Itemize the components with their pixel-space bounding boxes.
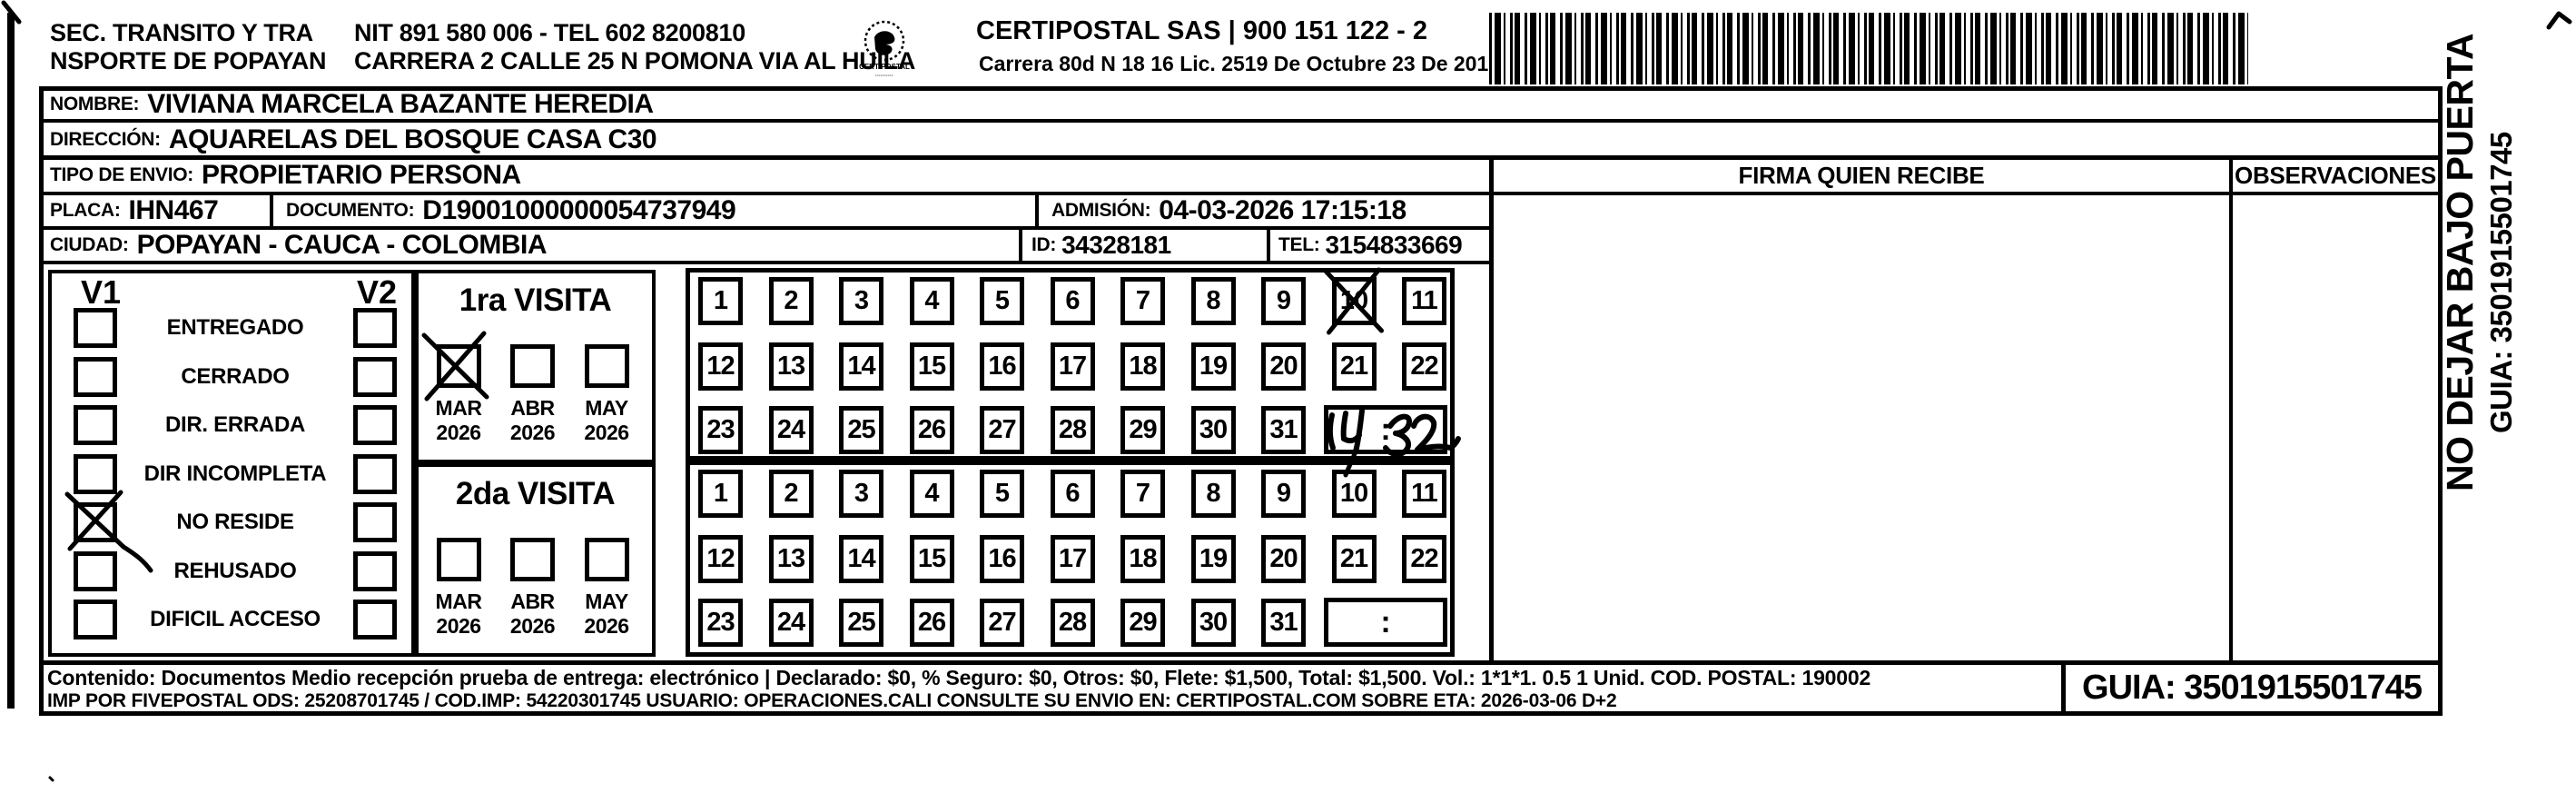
v1-checkbox-dir-errada[interactable] xyxy=(74,405,117,445)
admision-cell: ADMISIÓN: 04-03-2026 17:15:18 xyxy=(1051,196,1406,225)
v1-checkbox-rehusado[interactable] xyxy=(74,551,117,591)
first-visit-day-14[interactable]: 14 xyxy=(839,342,883,391)
second-visit-day-18[interactable]: 18 xyxy=(1120,535,1165,583)
status-row-dificil-acceso: DIFICIL ACCESO xyxy=(74,598,397,641)
firma-header: FIRMA QUIEN RECIBE xyxy=(1494,160,2229,192)
month-label: MAY xyxy=(578,396,635,421)
first-visit-day-21[interactable]: 21 xyxy=(1332,342,1377,391)
first-visit-day-1[interactable]: 1 xyxy=(698,277,743,325)
v2-checkbox-dir-incompleta[interactable] xyxy=(353,454,397,494)
month-label: MAY xyxy=(578,590,635,614)
second-visit-day-11[interactable]: 11 xyxy=(1402,470,1446,518)
second-visit-day-29[interactable]: 29 xyxy=(1120,599,1165,647)
direccion-label: DIRECCIÓN: xyxy=(50,129,161,151)
status-row-rehusado: REHUSADO xyxy=(74,550,397,593)
divider xyxy=(1267,226,1270,264)
first-visit-day-10[interactable]: 10 xyxy=(1332,277,1377,325)
documento-cell: DOCUMENTO: D19001000000054737949 xyxy=(286,196,735,225)
first-visit-day-17[interactable]: 17 xyxy=(1051,342,1095,391)
status-option-label: DIR. ERRADA xyxy=(117,412,353,438)
second-visit-day-23[interactable]: 23 xyxy=(698,599,743,647)
second-visit-title: 2da VISITA xyxy=(419,476,652,512)
placa-label: PLACA: xyxy=(50,200,121,222)
first-visit-day-7[interactable]: 7 xyxy=(1120,277,1165,325)
second-visit-month-col: MAR2026 xyxy=(430,538,487,639)
first-visit-day-5[interactable]: 5 xyxy=(980,277,1024,325)
first-visit-day-24[interactable]: 24 xyxy=(769,406,814,454)
second-visit-day-13[interactable]: 13 xyxy=(769,535,814,583)
first-visit-panel: 1ra VISITA MAR2026ABR2026MAY2026 xyxy=(415,270,656,463)
nombre-label: NOMBRE: xyxy=(50,94,139,115)
second-visit-day-28[interactable]: 28 xyxy=(1051,599,1095,647)
guia-vertical: GUIA: 3501915501745 xyxy=(2484,132,2519,433)
second-visit-month-checkbox-abr[interactable] xyxy=(510,538,555,581)
first-visit-month-col: MAR2026 xyxy=(430,344,487,445)
svg-text:··········: ·········· xyxy=(875,74,893,79)
second-visit-day-19[interactable]: 19 xyxy=(1191,535,1236,583)
v1-checkbox-dificil-acceso[interactable] xyxy=(74,600,117,639)
first-visit-day-20[interactable]: 20 xyxy=(1261,342,1306,391)
second-visit-day-4[interactable]: 4 xyxy=(910,470,954,518)
tracking-barcode xyxy=(1489,13,2248,84)
status-row-entregado: ENTREGADO xyxy=(74,306,397,350)
footer-line2: IMP POR FIVEPOSTAL ODS: 25208701745 / CO… xyxy=(47,690,1616,712)
second-visit-day-10[interactable]: 10 xyxy=(1332,470,1377,518)
svg-text:CERTIPOSTAL: CERTIPOSTAL xyxy=(859,63,910,71)
delivery-status-panel: V1 V2 ENTREGADOCERRADODIR. ERRADADIR INC… xyxy=(48,270,415,657)
month-label: MAR xyxy=(430,396,487,421)
second-visit-day-2[interactable]: 2 xyxy=(769,470,814,518)
status-option-label: DIFICIL ACCESO xyxy=(117,607,353,632)
first-visit-time-box[interactable]: : xyxy=(1324,405,1447,454)
second-visit-month-checkbox-mar[interactable] xyxy=(437,538,481,581)
status-option-label: DIR INCOMPLETA xyxy=(117,461,353,487)
tipo-envio-value: PROPIETARIO PERSONA xyxy=(202,160,521,191)
firma-area[interactable] xyxy=(1494,195,2229,660)
v2-checkbox-rehusado[interactable] xyxy=(353,551,397,591)
company-name: CERTIPOSTAL SAS | 900 151 122 - 2 xyxy=(976,16,1427,46)
first-visit-month-checkbox-mar[interactable] xyxy=(437,344,481,388)
year-label: 2026 xyxy=(578,421,635,445)
guia-number: GUIA: 3501915501745 xyxy=(2066,665,2438,711)
status-row-cerrado: CERRADO xyxy=(74,355,397,399)
documento-value: D19001000000054737949 xyxy=(422,195,735,226)
first-visit-title: 1ra VISITA xyxy=(419,283,652,319)
second-visit-day-21[interactable]: 21 xyxy=(1332,535,1377,583)
placa-value: IHN467 xyxy=(129,195,219,226)
id-value: 34328181 xyxy=(1061,231,1171,260)
second-visit-day-30[interactable]: 30 xyxy=(1191,599,1236,647)
v1-checkbox-cerrado[interactable] xyxy=(74,357,117,397)
first-visit-day-9[interactable]: 9 xyxy=(1261,277,1306,325)
first-visit-day-26[interactable]: 26 xyxy=(910,406,954,454)
direccion-value: AQUARELAS DEL BOSQUE CASA C30 xyxy=(169,124,656,155)
v2-checkbox-no-reside[interactable] xyxy=(353,502,397,542)
status-option-label: CERRADO xyxy=(117,364,353,390)
tel-cell: TEL: 3154833669 xyxy=(1278,231,1462,260)
year-label: 2026 xyxy=(505,421,561,445)
first-visit-day-3[interactable]: 3 xyxy=(839,277,883,325)
status-option-label: NO RESIDE xyxy=(117,510,353,535)
documento-label: DOCUMENTO: xyxy=(286,200,414,222)
v1-checkbox-no-reside[interactable] xyxy=(74,502,117,542)
status-row-dir-incompleta: DIR INCOMPLETA xyxy=(74,452,397,496)
first-visit-day-23[interactable]: 23 xyxy=(698,406,743,454)
direccion-row: DIRECCIÓN: AQUARELAS DEL BOSQUE CASA C30 xyxy=(50,125,656,154)
tipo-envio-row: TIPO DE ENVIO: PROPIETARIO PERSONA xyxy=(50,161,521,190)
second-visit-day-6[interactable]: 6 xyxy=(1051,470,1095,518)
second-visit-month-checkbox-may[interactable] xyxy=(585,538,629,581)
company-address: Carrera 80d N 18 16 Lic. 2519 De Octubre… xyxy=(979,52,1500,76)
first-visit-day-25[interactable]: 25 xyxy=(839,406,883,454)
second-visit-day-8[interactable]: 8 xyxy=(1191,470,1236,518)
second-visit-day-24[interactable]: 24 xyxy=(769,599,814,647)
admision-label: ADMISIÓN: xyxy=(1051,200,1150,222)
first-visit-day-grid: 1234567891011121314151617181920212223242… xyxy=(686,268,1455,461)
placa-cell: PLACA: IHN467 xyxy=(50,196,218,225)
status-option-label: ENTREGADO xyxy=(117,315,353,341)
nombre-row: NOMBRE: VIVIANA MARCELA BAZANTE HEREDIA xyxy=(50,90,654,119)
month-label: ABR xyxy=(505,590,561,614)
divider xyxy=(39,261,1493,264)
second-visit-month-col: ABR2026 xyxy=(505,538,561,639)
second-visit-day-3[interactable]: 3 xyxy=(839,470,883,518)
first-visit-day-16[interactable]: 16 xyxy=(980,342,1024,391)
divider xyxy=(1035,192,1039,230)
first-visit-day-30[interactable]: 30 xyxy=(1191,406,1236,454)
first-visit-day-29[interactable]: 29 xyxy=(1120,406,1165,454)
v1-checkbox-dir-incompleta[interactable] xyxy=(74,454,117,494)
second-visit-day-7[interactable]: 7 xyxy=(1120,470,1165,518)
tel-value: 3154833669 xyxy=(1325,231,1462,260)
month-label: MAR xyxy=(430,590,487,614)
second-visit-day-25[interactable]: 25 xyxy=(839,599,883,647)
v2-checkbox-dir-errada[interactable] xyxy=(353,405,397,445)
v1-checkbox-entregado[interactable] xyxy=(74,308,117,348)
status-row-no-reside: NO RESIDE xyxy=(74,501,397,544)
v2-checkbox-cerrado[interactable] xyxy=(353,357,397,397)
first-visit-day-15[interactable]: 15 xyxy=(910,342,954,391)
second-visit-day-14[interactable]: 14 xyxy=(839,535,883,583)
first-visit-day-27[interactable]: 27 xyxy=(980,406,1024,454)
second-visit-panel: 2da VISITA MAR2026ABR2026MAY2026 xyxy=(415,463,656,657)
second-visit-day-1[interactable]: 1 xyxy=(698,470,743,518)
first-visit-day-11[interactable]: 11 xyxy=(1402,277,1446,325)
tel-label: TEL: xyxy=(1278,234,1319,256)
second-visit-time-box[interactable]: : xyxy=(1324,598,1447,647)
first-visit-day-12[interactable]: 12 xyxy=(698,342,743,391)
second-visit-day-5[interactable]: 5 xyxy=(980,470,1024,518)
second-visit-day-12[interactable]: 12 xyxy=(698,535,743,583)
first-visit-day-13[interactable]: 13 xyxy=(769,342,814,391)
observaciones-header: OBSERVACIONES xyxy=(2233,160,2438,192)
first-visit-month-col: MAY2026 xyxy=(578,344,635,445)
year-label: 2026 xyxy=(430,614,487,639)
shipping-label-scan: SEC. TRANSITO Y TRA NSPORTE DE POPAYAN N… xyxy=(0,0,2576,803)
ciudad-value: POPAYAN - CAUCA - COLOMBIA xyxy=(137,230,547,261)
ciudad-label: CIUDAD: xyxy=(50,234,129,256)
footer-line1: Contenido: Documentos Medio recepción pr… xyxy=(47,666,1870,690)
v2-checkbox-entregado[interactable] xyxy=(353,308,397,348)
year-label: 2026 xyxy=(578,614,635,639)
border-left xyxy=(39,86,44,716)
ciudad-cell: CIUDAD: POPAYAN - CAUCA - COLOMBIA xyxy=(50,231,547,260)
id-cell: ID: 34328181 xyxy=(1031,231,1171,260)
year-label: 2026 xyxy=(430,421,487,445)
id-label: ID: xyxy=(1031,234,1056,256)
first-visit-day-4[interactable]: 4 xyxy=(910,277,954,325)
status-row-dir-errada: DIR. ERRADA xyxy=(74,403,397,447)
admision-value: 04-03-2026 17:15:18 xyxy=(1159,195,1406,226)
second-visit-day-20[interactable]: 20 xyxy=(1261,535,1306,583)
second-visit-month-col: MAY2026 xyxy=(578,538,635,639)
second-visit-day-22[interactable]: 22 xyxy=(1402,535,1446,583)
month-label: ABR xyxy=(505,396,561,421)
divider xyxy=(1019,226,1022,264)
year-label: 2026 xyxy=(505,614,561,639)
first-visit-day-6[interactable]: 6 xyxy=(1051,277,1095,325)
certipostal-logo-icon: CERTIPOSTAL ·········· xyxy=(857,18,912,82)
second-visit-day-grid: 1234567891011121314151617181920212223242… xyxy=(686,461,1455,657)
second-visit-day-17[interactable]: 17 xyxy=(1051,535,1095,583)
first-visit-day-8[interactable]: 8 xyxy=(1191,277,1236,325)
first-visit-month-col: ABR2026 xyxy=(505,344,561,445)
second-visit-day-9[interactable]: 9 xyxy=(1261,470,1306,518)
time-colon: : xyxy=(1380,412,1390,448)
v2-checkbox-dificil-acceso[interactable] xyxy=(353,600,397,639)
status-option-label: REHUSADO xyxy=(117,559,353,584)
nombre-value: VIVIANA MARCELA BAZANTE HEREDIA xyxy=(147,89,653,120)
first-visit-day-18[interactable]: 18 xyxy=(1120,342,1165,391)
observaciones-area[interactable] xyxy=(2233,195,2438,660)
second-visit-day-26[interactable]: 26 xyxy=(910,599,954,647)
sender-org-contact: NIT 891 580 006 - TEL 602 8200810 CARRER… xyxy=(354,19,915,75)
tipo-envio-label: TIPO DE ENVIO: xyxy=(50,164,193,186)
first-visit-day-22[interactable]: 22 xyxy=(1402,342,1446,391)
fold-mark xyxy=(7,13,15,709)
second-visit-day-15[interactable]: 15 xyxy=(910,535,954,583)
first-visit-day-31[interactable]: 31 xyxy=(1261,406,1306,454)
time-colon: : xyxy=(1380,605,1390,640)
sender-org-name: SEC. TRANSITO Y TRA NSPORTE DE POPAYAN xyxy=(50,19,326,75)
divider xyxy=(270,192,273,230)
first-visit-day-2[interactable]: 2 xyxy=(769,277,814,325)
second-visit-day-31[interactable]: 31 xyxy=(1261,599,1306,647)
first-visit-month-checkbox-abr[interactable] xyxy=(510,344,555,388)
no-dejar-warning: NO DEJAR BAJO PUERTA xyxy=(2439,34,2482,491)
first-visit-month-checkbox-may[interactable] xyxy=(585,344,629,388)
first-visit-day-28[interactable]: 28 xyxy=(1051,406,1095,454)
second-visit-day-16[interactable]: 16 xyxy=(980,535,1024,583)
second-visit-day-27[interactable]: 27 xyxy=(980,599,1024,647)
first-visit-day-19[interactable]: 19 xyxy=(1191,342,1236,391)
